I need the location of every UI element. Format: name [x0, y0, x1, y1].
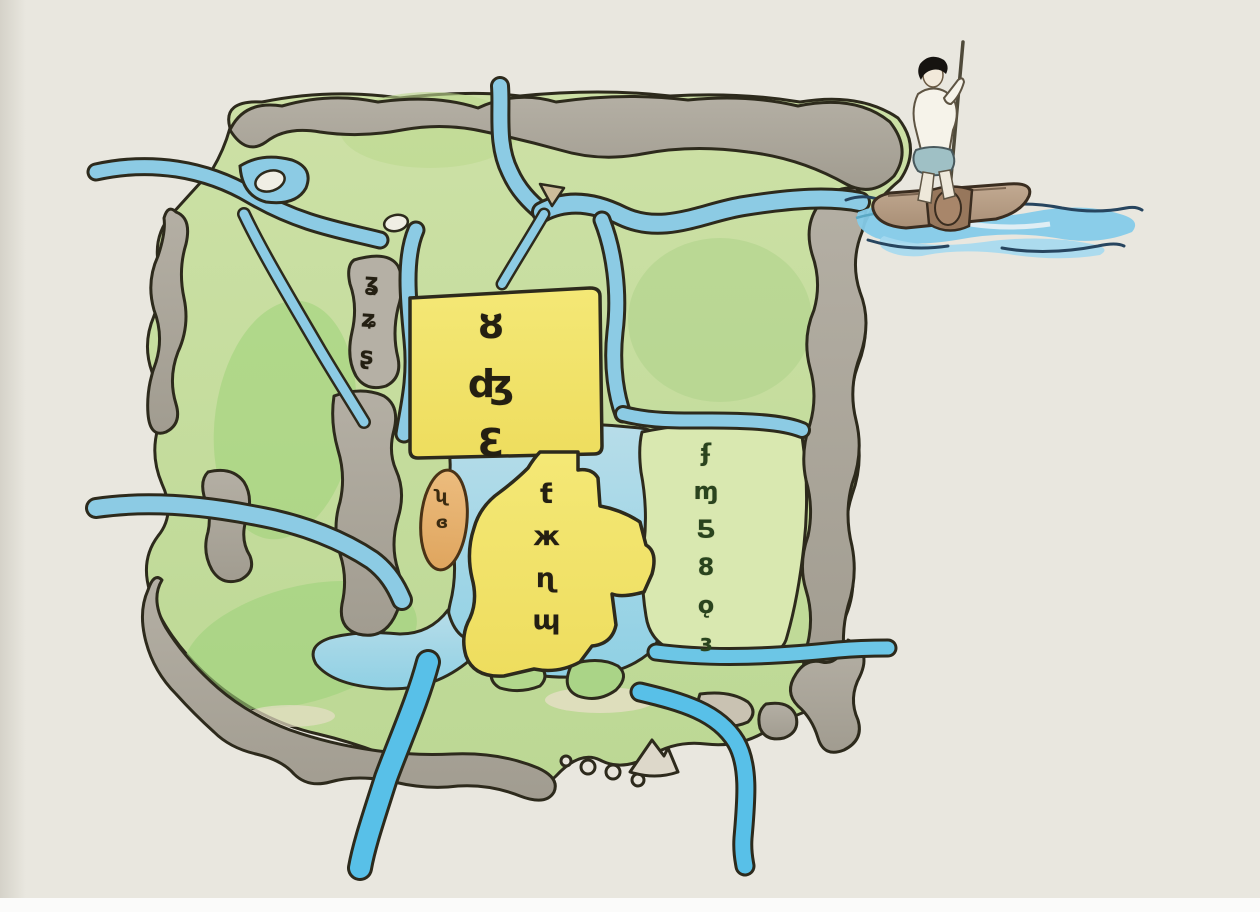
- left-road-stub: [203, 470, 252, 581]
- street-strip-label: ʓʑʂ: [353, 267, 385, 379]
- page-bottom-edge: [0, 898, 1260, 912]
- stone-dot: [561, 756, 571, 766]
- south-gray-blob: [759, 703, 797, 739]
- boatman-leg: [918, 172, 934, 203]
- lake-island-label: ʯɞ: [433, 487, 450, 539]
- boatman-arm: [944, 78, 964, 104]
- stone-dot: [581, 760, 595, 774]
- south-district-label: ƭжɳɰ: [533, 479, 560, 647]
- east-district-label: ʄɱƼ8ǫɜ: [694, 439, 718, 667]
- east-district-area: [640, 423, 807, 659]
- green-wash: [628, 238, 812, 402]
- map-artwork: [0, 0, 1260, 912]
- illustration-canvas: ʓʑʂ ȣʤƐ ʯɞ ƭжɳɰ ʄɱƼ8ǫɜ: [0, 0, 1260, 912]
- stone-dot: [606, 765, 620, 779]
- central-district-label: ȣʤƐ: [472, 303, 510, 480]
